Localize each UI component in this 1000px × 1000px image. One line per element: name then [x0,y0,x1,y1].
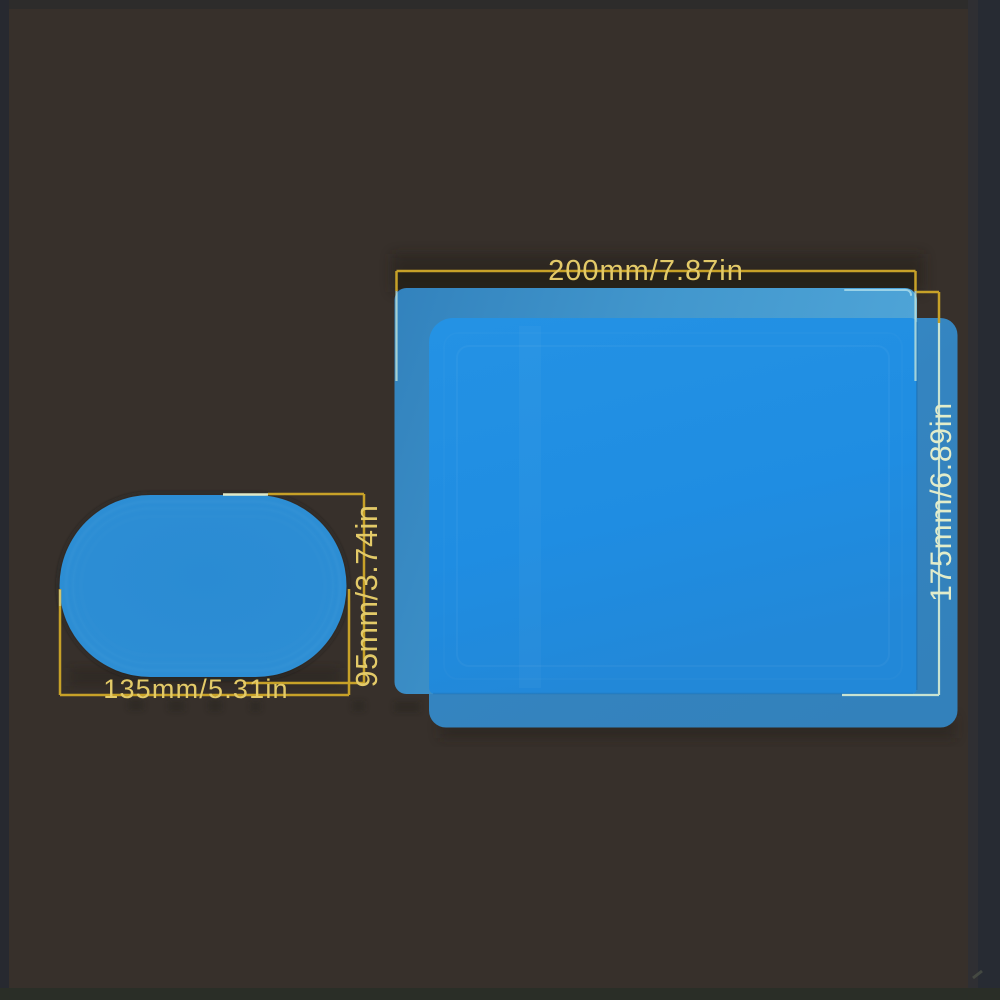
svg-text:95mm/3.74in: 95mm/3.74in [350,505,384,688]
svg-text:135mm/5.31in: 135mm/5.31in [103,674,289,704]
svg-text:200mm/7.87in: 200mm/7.87in [548,255,744,287]
svg-text:175mm/6.89in: 175mm/6.89in [925,402,958,602]
